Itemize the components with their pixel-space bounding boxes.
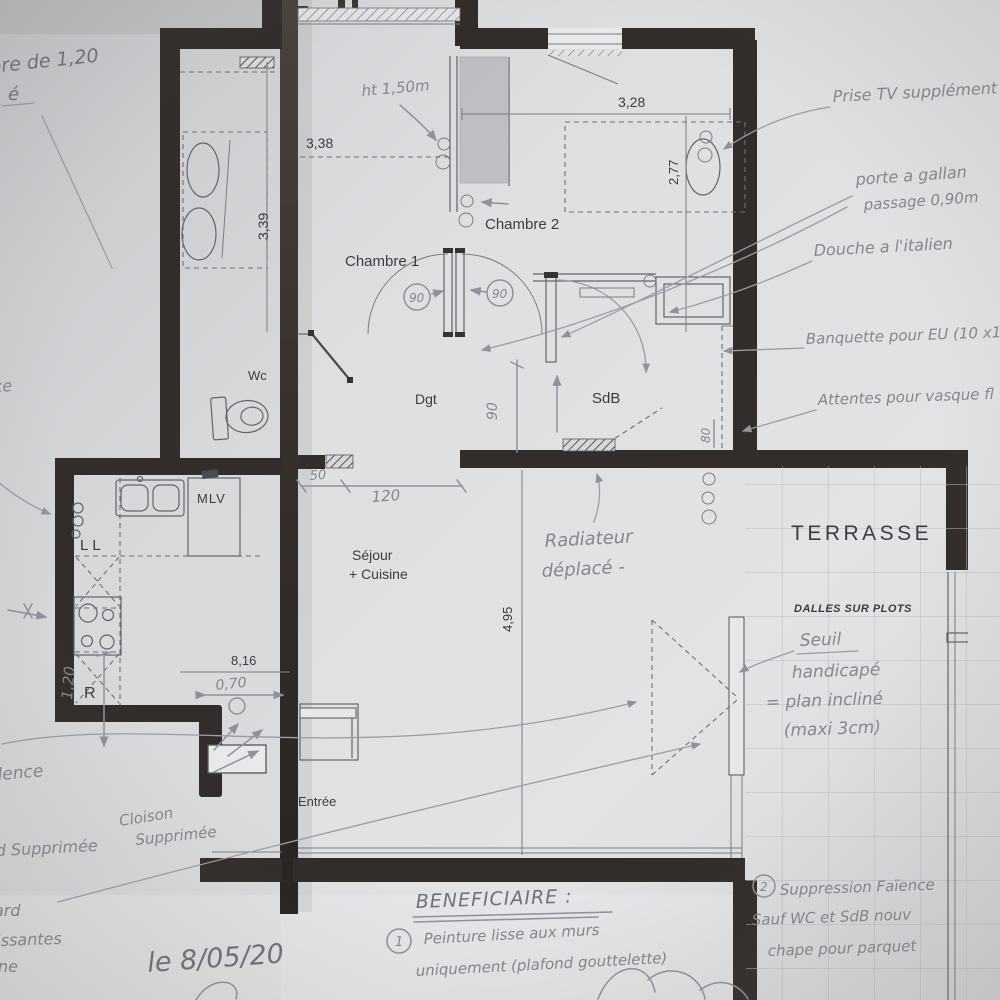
note-seuil-3: = plan incliné — [765, 689, 883, 713]
dim-070: 0,70 — [215, 675, 248, 694]
frag-lissantes: lissantes — [0, 929, 62, 950]
door-width-right: 90 — [492, 287, 508, 301]
dim-338: 3,38 — [306, 135, 333, 151]
label-entree: Entrée — [298, 794, 336, 809]
note-radiateur-2: déplacé - — [541, 557, 625, 582]
scanned-floor-plan: TERRASSE DALLES SUR PLOTS Wc — [0, 0, 1000, 1000]
sejour-radiator — [326, 455, 353, 468]
label-sdb: SdB — [592, 390, 620, 407]
label-chambre-1: Chambre 1 — [345, 253, 419, 270]
radiator-icon — [326, 455, 353, 468]
label-mlv: MLV — [197, 491, 226, 506]
frag-ard: ard — [0, 901, 21, 920]
label-ll: LL — [80, 537, 105, 554]
note-seuil-2: handicapé — [791, 660, 880, 683]
label-dgt: Dgt — [415, 391, 437, 407]
label-wc: Wc — [248, 368, 267, 383]
dim-120: 120 — [371, 486, 401, 506]
radiator-icon — [563, 439, 615, 451]
door-width-left: 90 — [409, 291, 425, 305]
frag-accent: é — [8, 84, 19, 105]
wardrobe-block — [460, 57, 507, 183]
window-band-icon — [298, 8, 460, 21]
radiator-icon — [240, 57, 274, 68]
note-2-number: 2 — [760, 880, 768, 894]
dim-495: 4,95 — [500, 607, 515, 632]
window-gap — [548, 28, 622, 49]
dim-328: 3,28 — [618, 94, 645, 110]
label-sejour: Séjour — [352, 547, 393, 563]
dim-816: 8,16 — [231, 653, 256, 668]
dim-50: 50 — [309, 468, 327, 484]
page-fold — [280, 0, 298, 914]
floor-plan-svg: TERRASSE DALLES SUR PLOTS Wc — [0, 0, 1000, 1000]
label-terrasse: TERRASSE — [791, 522, 932, 545]
dim-277: 2,77 — [666, 160, 681, 185]
dim-120-vertical: 1,20 — [58, 666, 79, 701]
note-seuil-1: Seuil — [799, 630, 841, 651]
frag-ce: ce — [0, 376, 13, 397]
frag-ne: ne — [0, 957, 18, 976]
label-dalles-sur-plots: DALLES SUR PLOTS — [794, 603, 912, 615]
label-cuisine: + Cuisine — [349, 566, 408, 582]
dim-90-hall: 90 — [485, 402, 501, 420]
label-r: R — [84, 685, 96, 702]
dim-339: 3,39 — [255, 213, 271, 240]
note-1-number: 1 — [395, 935, 403, 950]
label-chambre-2: Chambre 2 — [485, 216, 559, 233]
note-seuil-4: (maxi 3cm) — [783, 718, 881, 741]
dim-80: 80 — [699, 427, 713, 443]
